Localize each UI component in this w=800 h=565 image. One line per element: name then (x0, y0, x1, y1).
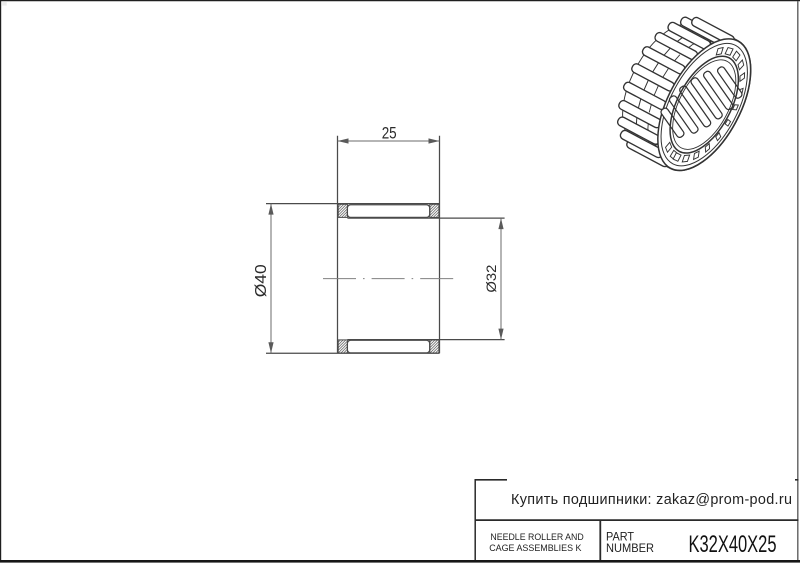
svg-text:NUMBER: NUMBER (606, 541, 654, 555)
svg-text:NEEDLE ROLLER AND: NEEDLE ROLLER AND (490, 532, 584, 542)
svg-text:Ø40: Ø40 (253, 264, 270, 297)
svg-text:K32X40X25: K32X40X25 (689, 531, 777, 558)
svg-text:25: 25 (382, 124, 397, 143)
svg-text:Купить подшипники: zakaz@prom-: Купить подшипники: zakaz@prom-pod.ru (511, 492, 792, 508)
svg-text:CAGE ASSEMBLIES K: CAGE ASSEMBLIES K (489, 543, 581, 553)
svg-text:Ø32: Ø32 (483, 264, 499, 292)
